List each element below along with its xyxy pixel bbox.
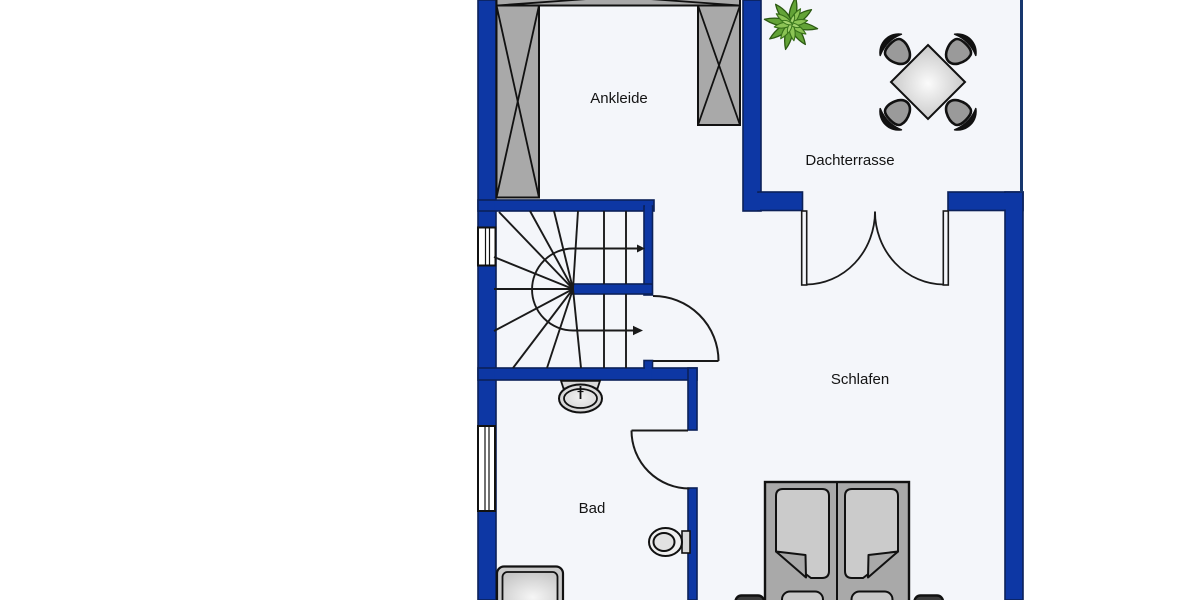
svg-text:Bad: Bad xyxy=(579,500,606,517)
svg-text:Ankleide: Ankleide xyxy=(590,90,648,107)
svg-text:Schlafen: Schlafen xyxy=(831,371,889,388)
svg-text:Dachterrasse: Dachterrasse xyxy=(805,152,894,169)
